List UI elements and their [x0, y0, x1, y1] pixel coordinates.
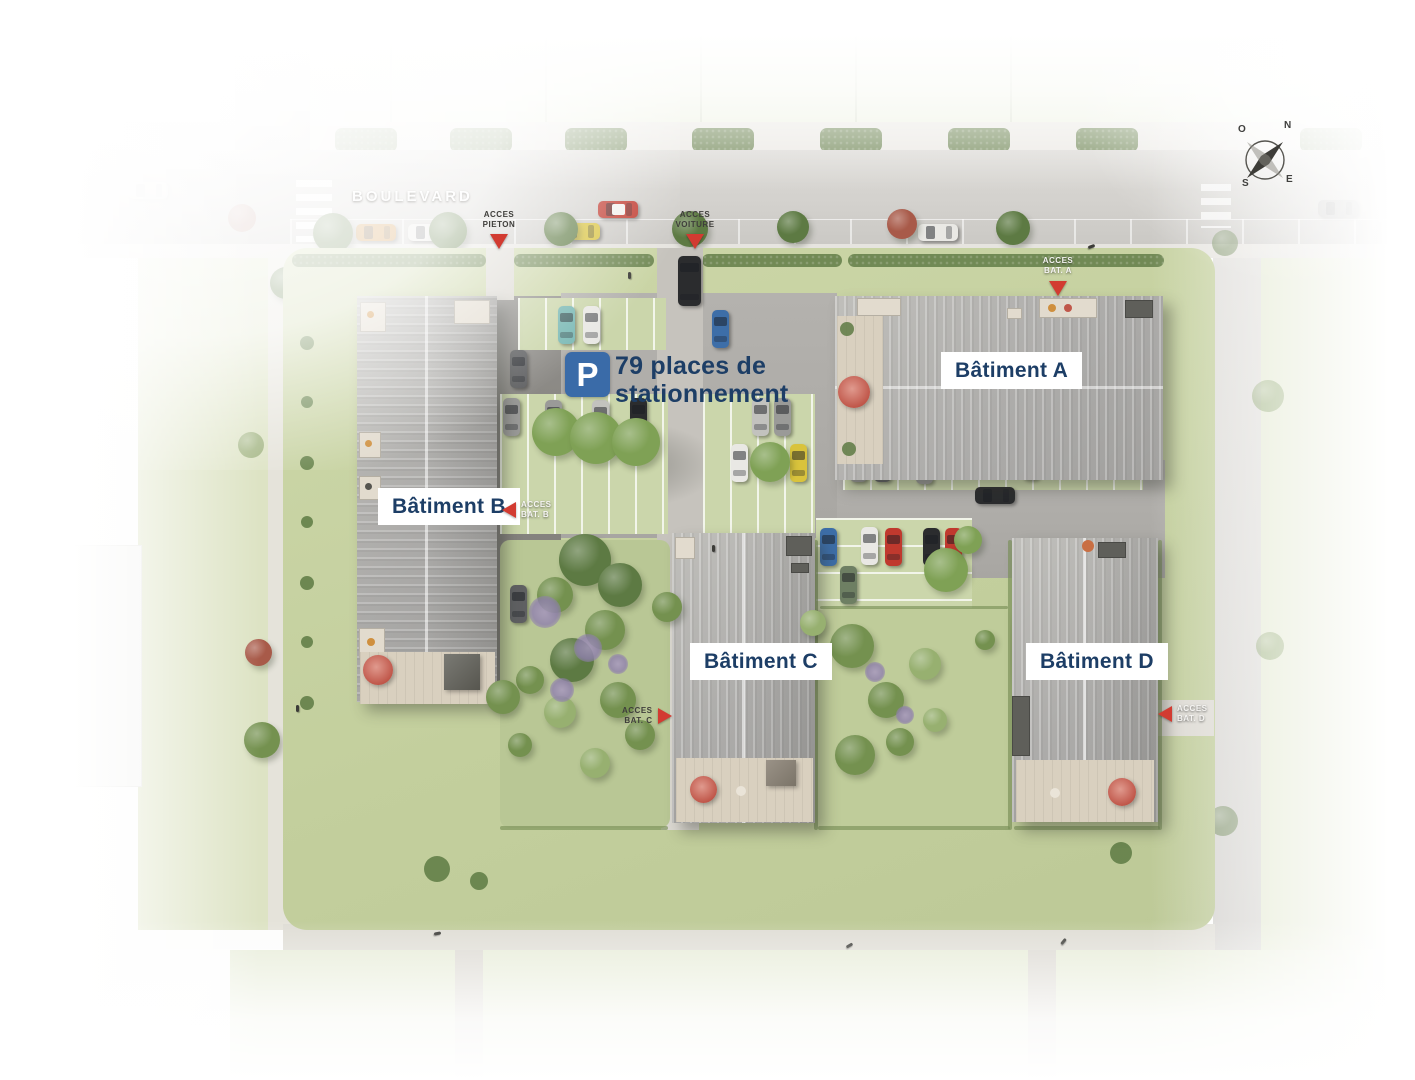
car	[975, 487, 1015, 504]
flower-patch	[865, 662, 885, 682]
street-tree	[996, 211, 1030, 245]
parking-p-icon: P	[565, 352, 610, 397]
access-bat-a-label: ACCES BAT. A	[1032, 256, 1084, 277]
terrace-table	[736, 786, 746, 796]
terrace-umbrella	[1108, 778, 1136, 806]
street-hedge	[948, 128, 1010, 152]
rooftop-unit	[1098, 542, 1126, 558]
skylight	[1007, 308, 1022, 319]
person-marker	[296, 705, 299, 712]
balcony-inset	[454, 300, 490, 324]
street-tree-red	[887, 209, 917, 239]
street-hedge	[1300, 128, 1362, 152]
lot-tree	[924, 548, 968, 592]
north-plot-line	[700, 0, 702, 126]
left-park	[138, 248, 283, 930]
car	[712, 310, 729, 348]
balcony-inset	[675, 537, 695, 559]
parking-count-label: 79 places de stationnement	[615, 352, 788, 408]
street-hedge	[1076, 128, 1138, 152]
tree	[245, 639, 272, 666]
access-pieton-marker: ACCES PIETON	[472, 210, 526, 249]
tree	[244, 722, 280, 758]
car	[503, 398, 520, 436]
terrace-table	[1050, 788, 1060, 798]
garden-tree	[598, 563, 642, 607]
garden-tree	[652, 592, 682, 622]
access-line: ACCES	[1032, 256, 1084, 266]
street-tree	[1212, 230, 1238, 256]
furniture-dot	[367, 638, 375, 646]
flower-patch	[550, 678, 574, 702]
access-voiture-arrow-icon	[686, 234, 704, 249]
car	[820, 528, 837, 566]
furniture-dot	[365, 440, 372, 447]
car	[510, 585, 527, 623]
furniture-dot	[365, 483, 372, 490]
garden-tree	[508, 733, 532, 757]
building-b-label: Bâtiment B	[378, 488, 520, 525]
garden-tree	[886, 728, 914, 756]
south-block-path	[1028, 950, 1056, 1080]
balcony-inset	[1039, 298, 1097, 318]
access-line: BAT. B	[521, 510, 552, 520]
garden-tree	[800, 610, 826, 636]
car	[356, 224, 396, 241]
street-tree-red	[228, 204, 256, 232]
building-d-label: Bâtiment D	[1026, 643, 1168, 680]
flower-patch	[574, 634, 602, 662]
bush	[300, 576, 314, 590]
site-hedge-north	[514, 254, 654, 267]
site-hedge-north	[848, 254, 1164, 267]
pieton-walkway	[486, 248, 514, 300]
car	[790, 444, 807, 482]
boulevard-label: BOULEVARD	[352, 188, 473, 205]
garden-hedge	[1158, 540, 1162, 830]
neighbor-building-faint	[55, 545, 142, 787]
garden-tree	[486, 680, 520, 714]
car	[558, 306, 575, 344]
crosswalk-right	[1201, 184, 1231, 228]
site-hedge-north	[702, 254, 842, 267]
car	[840, 566, 857, 604]
access-voiture-marker: ACCES VOITURE	[666, 210, 724, 249]
access-pieton-arrow-icon	[490, 234, 508, 249]
garden-hedge	[500, 826, 668, 830]
bush	[301, 516, 313, 528]
garden-tree	[909, 648, 941, 680]
balcony-inset	[360, 302, 386, 332]
access-bat-b-arrow-icon	[502, 502, 516, 518]
flower-patch	[608, 654, 628, 674]
bush	[301, 396, 313, 408]
flower-patch	[896, 706, 914, 724]
bush	[300, 456, 314, 470]
access-bat-d-arrow-icon	[1158, 706, 1172, 722]
terrace-umbrella	[690, 776, 717, 803]
access-bat-d-label: ACCES BAT. D	[1177, 704, 1208, 725]
street-tree	[313, 213, 353, 253]
bush	[300, 336, 314, 350]
access-line: ACCES	[666, 210, 724, 220]
street-hedge	[450, 128, 512, 152]
south-block	[230, 950, 1415, 1080]
furniture-dot	[367, 311, 374, 318]
access-pieton-label: ACCES PIETON	[472, 210, 526, 231]
compass-rose: O N S E	[1230, 118, 1300, 196]
street-hedge	[692, 128, 754, 152]
person-marker	[628, 272, 631, 279]
tree	[1256, 632, 1284, 660]
site-hedge-north	[292, 254, 486, 267]
bush	[470, 872, 488, 890]
bush	[1110, 842, 1132, 864]
street-hedge	[565, 128, 627, 152]
parking-count-line1: 79 places de	[615, 352, 788, 380]
access-line: ACCES	[1177, 704, 1208, 714]
car	[861, 527, 878, 565]
terrace-umbrella	[363, 655, 393, 685]
rooftop-unit-orange	[1082, 540, 1094, 552]
balcony-inset	[359, 432, 381, 458]
bush	[424, 856, 450, 882]
terrace-umbrella	[838, 376, 870, 408]
access-bat-a-marker: ACCES BAT. A	[1032, 256, 1084, 296]
garden-tree	[923, 708, 947, 732]
access-voiture-label: ACCES VOITURE	[666, 210, 724, 231]
skylight	[791, 563, 809, 573]
lot-tree	[750, 442, 790, 482]
car-entering	[678, 256, 701, 306]
access-line: BAT. C	[622, 716, 653, 726]
access-line: PIETON	[472, 220, 526, 230]
flower-patch	[529, 596, 561, 628]
compass-west-label: O	[1238, 124, 1246, 135]
access-bat-d-marker: ACCES BAT. D	[1158, 704, 1208, 725]
lot-tree	[612, 418, 660, 466]
compass-north-label: N	[1284, 120, 1291, 131]
north-plot-line	[390, 0, 392, 126]
north-plot-line	[1010, 0, 1012, 126]
car	[885, 528, 902, 566]
rooftop-unit	[786, 536, 812, 556]
building-a-label: Bâtiment A	[941, 352, 1082, 389]
car	[128, 182, 168, 199]
access-bat-b-marker: ACCES BAT. B	[502, 500, 552, 521]
garden-tree	[580, 748, 610, 778]
garden-tree	[975, 630, 995, 650]
access-line: BAT. D	[1177, 714, 1208, 724]
terrace-plant	[840, 322, 854, 336]
site-plan-canvas: BOULEVARD P 79 places de stationnement B…	[0, 0, 1415, 1080]
north-plot-line	[855, 0, 857, 126]
furniture-dot	[1048, 304, 1056, 312]
access-bat-a-arrow-icon	[1049, 281, 1067, 296]
compass-east-label: E	[1286, 174, 1293, 185]
car	[510, 350, 527, 388]
garden-hedge	[1014, 826, 1160, 830]
access-bat-c-marker: ACCES BAT. C	[622, 706, 672, 727]
street-tree	[429, 212, 467, 250]
person-marker	[712, 545, 715, 552]
tree	[238, 432, 264, 458]
garden-tree	[830, 624, 874, 668]
garden-hedge	[818, 826, 1010, 830]
terrace-gazebo	[444, 654, 480, 690]
bush	[300, 696, 314, 710]
access-line: ACCES	[472, 210, 526, 220]
tree	[1252, 380, 1284, 412]
car	[583, 306, 600, 344]
furniture-dot	[1064, 304, 1072, 312]
access-line: VOITURE	[666, 220, 724, 230]
car-roof	[612, 204, 625, 215]
car	[731, 444, 748, 482]
compass-south-label: S	[1242, 178, 1249, 189]
north-block-wash	[220, 0, 1415, 128]
access-line: BAT. A	[1032, 266, 1084, 276]
parking-count-line2: stationnement	[615, 380, 788, 408]
access-line: ACCES	[521, 500, 552, 510]
lot-tree	[954, 526, 982, 554]
car	[1318, 200, 1358, 217]
left-street	[235, 0, 310, 158]
terrace-pergola	[766, 760, 796, 786]
street-tree	[777, 211, 809, 243]
building-c-label: Bâtiment C	[690, 643, 832, 680]
car	[918, 224, 958, 241]
south-block-path	[455, 950, 483, 1080]
garden-hedge	[820, 606, 1008, 609]
garden-tree	[835, 735, 875, 775]
entry-recess	[1012, 696, 1030, 756]
north-plot-line	[545, 0, 547, 126]
garden-tree	[516, 666, 544, 694]
access-bat-c-label: ACCES BAT. C	[622, 706, 653, 727]
street-hedge	[335, 128, 397, 152]
street-hedge	[820, 128, 882, 152]
bush	[301, 636, 313, 648]
access-line: ACCES	[622, 706, 653, 716]
terrace-plant	[842, 442, 856, 456]
car-on-road	[598, 201, 638, 218]
rooftop-unit	[1125, 300, 1153, 318]
balcony-inset	[857, 298, 901, 316]
access-bat-c-arrow-icon	[658, 708, 672, 724]
access-bat-b-label: ACCES BAT. B	[521, 500, 552, 521]
street-tree	[544, 212, 578, 246]
